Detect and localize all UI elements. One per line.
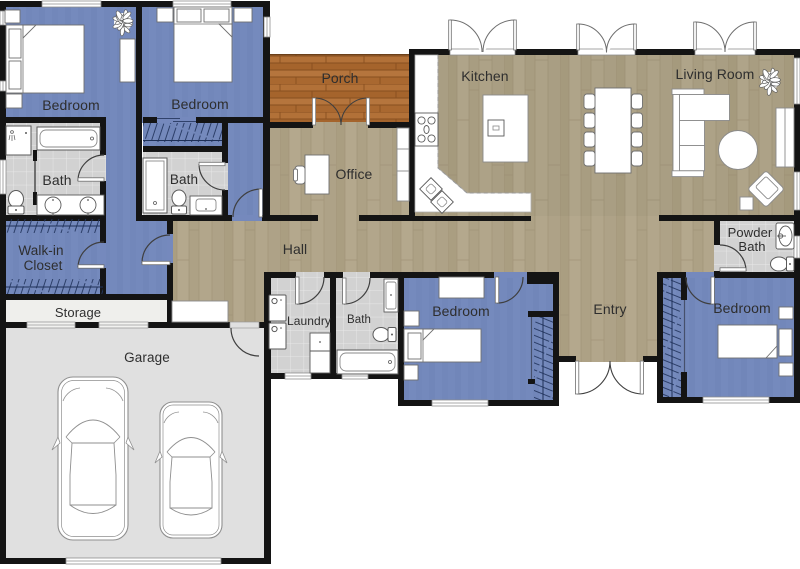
svg-text:Storage: Storage <box>55 305 101 320</box>
svg-text:Bath: Bath <box>42 172 71 188</box>
svg-text:Porch: Porch <box>321 70 358 86</box>
svg-text:Garage: Garage <box>124 350 170 365</box>
svg-text:Powder: Powder <box>728 225 773 240</box>
svg-text:Bedroom: Bedroom <box>432 303 490 319</box>
svg-text:Hall: Hall <box>283 241 308 257</box>
svg-text:Bath: Bath <box>347 314 371 326</box>
svg-text:Bath: Bath <box>738 239 765 254</box>
svg-text:Living Room: Living Room <box>676 66 755 82</box>
svg-text:Entry: Entry <box>593 301 626 317</box>
svg-text:Closet: Closet <box>24 258 63 273</box>
svg-text:Kitchen: Kitchen <box>461 68 508 84</box>
svg-text:Bedroom: Bedroom <box>42 97 100 113</box>
svg-text:Laundry: Laundry <box>287 314 331 328</box>
svg-text:Bedroom: Bedroom <box>713 300 771 316</box>
svg-text:Office: Office <box>336 166 373 182</box>
svg-text:Bedroom: Bedroom <box>171 96 229 112</box>
svg-text:Bath: Bath <box>170 172 198 187</box>
svg-text:Walk-in: Walk-in <box>18 243 63 258</box>
